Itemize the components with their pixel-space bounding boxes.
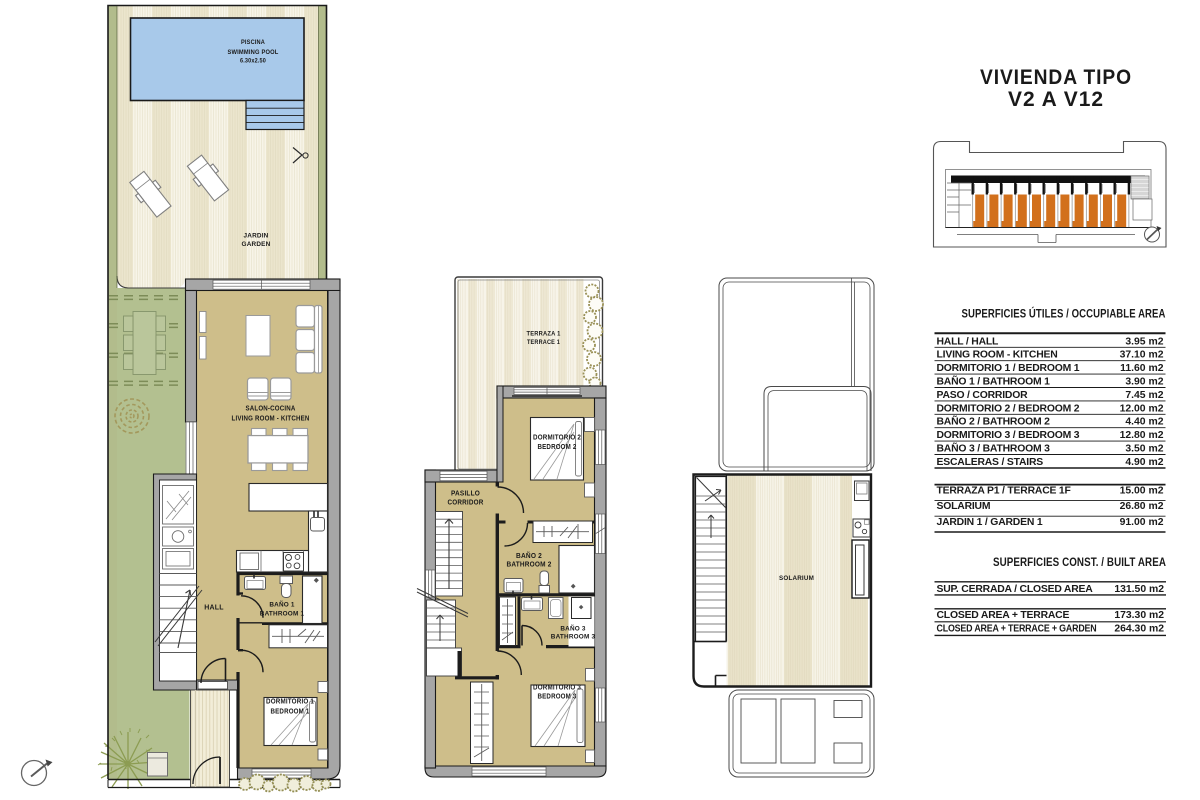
svg-text:SUPERFICIES CONST. / BUILT AR: SUPERFICIES CONST. / BUILT AREA	[993, 556, 1166, 569]
svg-text:4.90 m2: 4.90 m2	[1125, 457, 1163, 468]
svg-text:173.30 m2: 173.30 m2	[1114, 610, 1164, 621]
svg-text:BAÑO 1: BAÑO 1	[269, 600, 295, 609]
svg-text:DORMITORIO 2 / BEDROOM 2: DORMITORIO 2 / BEDROOM 2	[937, 403, 1080, 414]
svg-text:6.30x2.50: 6.30x2.50	[240, 58, 266, 65]
svg-text:BATHROOM 2: BATHROOM 2	[507, 562, 552, 569]
svg-text:GARDEN: GARDEN	[242, 241, 271, 248]
svg-text:BAÑO 2: BAÑO 2	[516, 551, 542, 560]
svg-text:PASILLO: PASILLO	[451, 491, 480, 498]
svg-text:264.30 m2: 264.30 m2	[1114, 623, 1164, 634]
svg-text:TERRAZA P1 / TERRACE 1F: TERRAZA P1 / TERRACE 1F	[937, 485, 1071, 496]
svg-text:SUP. CERRADA / CLOSED AREA: SUP. CERRADA / CLOSED AREA	[937, 584, 1094, 595]
svg-text:SUPERFICIES ÚTILES / OCCUPIABL: SUPERFICIES ÚTILES / OCCUPIABLE AREA	[962, 308, 1166, 321]
svg-text:TERRACE 1: TERRACE 1	[527, 339, 560, 346]
svg-text:JARDIN: JARDIN	[244, 233, 269, 240]
svg-text:91.00 m2: 91.00 m2	[1120, 517, 1164, 528]
svg-text:CORRIDOR: CORRIDOR	[448, 500, 484, 507]
svg-text:SOLARIUM: SOLARIUM	[937, 501, 991, 512]
svg-text:26.80 m2: 26.80 m2	[1120, 501, 1164, 512]
svg-text:SWIMMING POOL: SWIMMING POOL	[228, 49, 279, 56]
svg-text:BEDROOM 2: BEDROOM 2	[538, 444, 577, 451]
svg-text:12.80 m2: 12.80 m2	[1120, 430, 1164, 441]
svg-text:DORMITORIO 1 / BEDROOM 1: DORMITORIO 1 / BEDROOM 1	[937, 363, 1080, 374]
svg-text:BAÑO 3: BAÑO 3	[560, 624, 586, 633]
svg-text:3.50 m2: 3.50 m2	[1125, 444, 1163, 455]
svg-text:HALL: HALL	[204, 605, 224, 612]
svg-text:BAÑO 2 / BATHROOM 2: BAÑO 2 / BATHROOM 2	[937, 415, 1051, 428]
svg-text:3.95 m2: 3.95 m2	[1125, 336, 1163, 347]
svg-text:TERRAZA 1: TERRAZA 1	[527, 331, 561, 338]
svg-text:BATHROOM 3: BATHROOM 3	[551, 634, 596, 641]
svg-text:7.45 m2: 7.45 m2	[1125, 390, 1163, 401]
svg-text:PISCINA: PISCINA	[241, 39, 265, 46]
svg-text:37.10 m2: 37.10 m2	[1120, 350, 1164, 361]
svg-text:131.50 m2: 131.50 m2	[1114, 584, 1164, 595]
svg-text:BEDROOM 1: BEDROOM 1	[271, 709, 310, 716]
svg-text:VIVIENDA TIPO: VIVIENDA TIPO	[980, 65, 1132, 89]
svg-text:BAÑO 3 / BATHROOM 3: BAÑO 3 / BATHROOM 3	[937, 442, 1051, 455]
svg-text:SOLARIUM: SOLARIUM	[779, 575, 814, 582]
svg-text:DORMITORIO 3: DORMITORIO 3	[533, 685, 581, 692]
svg-text:3.90 m2: 3.90 m2	[1125, 377, 1163, 388]
svg-text:ESCALERAS / STAIRS: ESCALERAS / STAIRS	[937, 457, 1044, 468]
svg-text:LIVING ROOM - KITCHEN: LIVING ROOM - KITCHEN	[232, 416, 310, 423]
svg-text:PASO / CORRIDOR: PASO / CORRIDOR	[937, 390, 1029, 401]
svg-text:DORMITORIO 3 / BEDROOM 3: DORMITORIO 3 / BEDROOM 3	[937, 430, 1080, 441]
svg-text:CLOSED AREA + TERRACE: CLOSED AREA + TERRACE	[937, 610, 1070, 621]
svg-text:BAÑO 1 / BATHROOM 1: BAÑO 1 / BATHROOM 1	[937, 375, 1051, 388]
svg-text:LIVING ROOM - KITCHEN: LIVING ROOM - KITCHEN	[937, 350, 1058, 361]
svg-text:HALL / HALL: HALL / HALL	[937, 336, 1000, 347]
svg-text:BATHROOM 1: BATHROOM 1	[260, 611, 305, 618]
svg-text:DORMITORIO 2: DORMITORIO 2	[533, 435, 581, 442]
svg-text:11.60 m2: 11.60 m2	[1120, 363, 1164, 374]
svg-text:15.00 m2: 15.00 m2	[1120, 485, 1164, 496]
svg-text:4.40 m2: 4.40 m2	[1125, 417, 1163, 428]
svg-text:JARDIN 1 / GARDEN 1: JARDIN 1 / GARDEN 1	[937, 517, 1043, 528]
svg-text:V2 A V12: V2 A V12	[1008, 87, 1104, 111]
svg-text:BEDROOM 3: BEDROOM 3	[538, 694, 577, 701]
svg-text:DORMITORIO 1: DORMITORIO 1	[266, 699, 314, 706]
svg-text:12.00 m2: 12.00 m2	[1120, 403, 1164, 414]
svg-text:SALON-COCINA: SALON-COCINA	[246, 406, 296, 413]
svg-text:CLOSED AREA + TERRACE + GARDEN: CLOSED AREA + TERRACE + GARDEN	[937, 623, 1097, 634]
